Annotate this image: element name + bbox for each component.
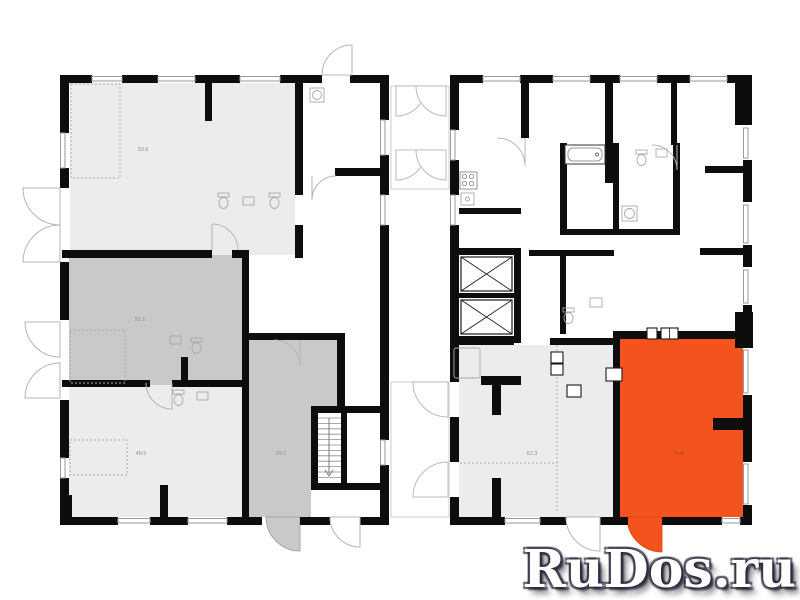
room-29-1-lower [249,412,311,517]
elevator-icon [461,257,512,291]
balcony-gap [391,86,449,517]
left-building: 93.6 92.1 48.9 29.1 [23,45,389,551]
balcony-door-swings [396,86,448,497]
area-label: 75.4 [673,451,684,457]
area-label: 92.1 [135,317,146,323]
sink-icon [590,298,602,307]
room-48-9 [69,385,249,517]
gray-door-swing [266,517,300,551]
room-29-1-upper [249,338,337,412]
area-label: 48.9 [136,451,147,457]
washer-icon [310,88,324,102]
bathtub-icon [565,145,605,164]
area-label: 29.1 [276,451,287,457]
sink-icon [656,149,667,157]
area-label: 62.3 [527,451,538,457]
rudos-watermark-logo: RuDos.ru [523,544,796,596]
toilet-icon [636,150,647,166]
room-62-3 [459,345,613,517]
elevator-icon [461,300,512,334]
stove-icon [460,172,477,189]
floor-plan-drawing: 93.6 92.1 48.9 29.1 [0,0,800,600]
floor-plan-page: 93.6 92.1 48.9 29.1 [0,0,800,600]
right-building: 62.3 75.4 [450,75,753,552]
kitchen-sink-icon [461,193,474,205]
area-label: 93.6 [138,147,149,153]
room-92-1 [69,255,249,385]
stairs-icon [318,418,341,477]
washer-icon [622,206,637,221]
room-93-6 [70,83,295,255]
